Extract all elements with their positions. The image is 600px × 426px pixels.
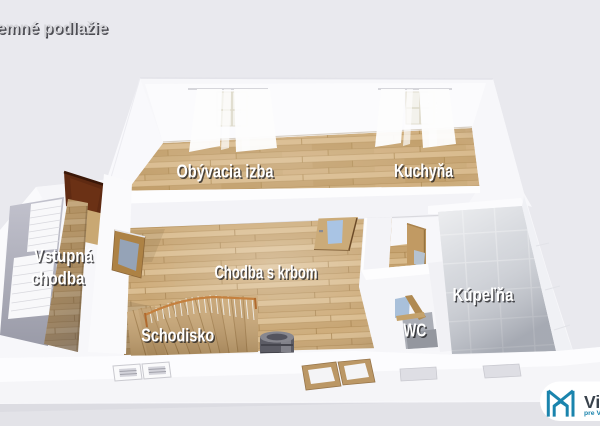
- svg-text:WC: WC: [403, 321, 426, 341]
- svg-text:Viz: Viz: [584, 392, 600, 412]
- svg-text:Podzemné podlažie: Podzemné podlažie: [0, 19, 108, 38]
- svg-text:Kuchyňa: Kuchyňa: [394, 161, 454, 181]
- svg-text:pre V: pre V: [584, 410, 600, 417]
- svg-text:Chodba s krbom: Chodba s krbom: [215, 263, 318, 283]
- svg-text:Obývacia izba: Obývacia izba: [177, 162, 275, 182]
- svg-text:Kúpeľňa: Kúpeľňa: [453, 285, 515, 305]
- svg-text:Schodisko: Schodisko: [141, 326, 214, 346]
- svg-text:chodba: chodba: [31, 269, 85, 289]
- svg-text:Vstupná: Vstupná: [34, 246, 94, 266]
